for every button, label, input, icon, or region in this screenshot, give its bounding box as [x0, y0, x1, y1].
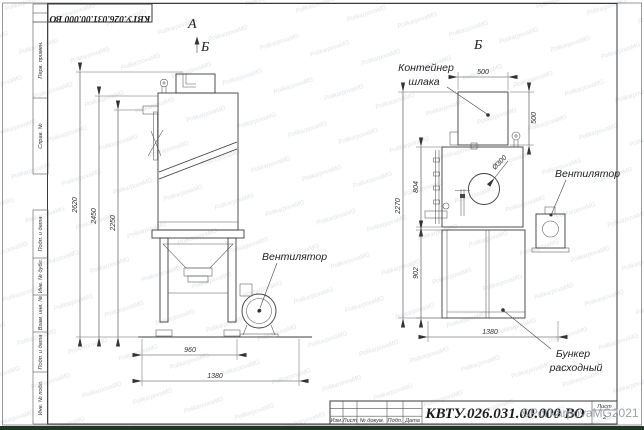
- dim-500-h: 500: [531, 112, 538, 124]
- hopper-label-line1: Бункер: [556, 348, 590, 360]
- front-fan-label: Вентилятор: [262, 251, 327, 263]
- section-view-label: Б: [473, 38, 482, 53]
- dim-1380-section: 1380: [482, 329, 498, 336]
- drawing-sheet: PolikarpovaMG PolikarpovaMG КВТУ.026.031…: [0, 0, 644, 430]
- dim-500-w: 500: [477, 69, 489, 76]
- view-arrow-label-b: Б: [200, 40, 209, 55]
- dim-2620: 2620: [72, 197, 79, 214]
- strip-podp-data-1: Подп. и дата: [38, 216, 44, 251]
- strip-inv-podl: Инв. № подл.: [38, 381, 44, 416]
- section-fan-label: Вентилятор: [555, 168, 620, 180]
- strip-podp-data-2: Подп. и дата: [38, 334, 44, 369]
- view-arrow-label-a: А: [187, 17, 197, 32]
- strip-perv-primen: Перв. примен.: [38, 41, 44, 78]
- dim-902: 902: [413, 267, 420, 279]
- stamp-doc-number: КВТУ.026.031.00.000 ВО: [49, 13, 151, 23]
- tb-col-list: Лист: [342, 418, 358, 424]
- tb-col-data: Дата: [404, 418, 420, 424]
- corner-watermark: ©PolikarpovaMG2021: [521, 406, 639, 420]
- dim-960: 960: [184, 347, 196, 354]
- container-label-line2: шлака: [408, 76, 439, 88]
- valve-handle: [460, 194, 465, 198]
- strip-inv-dubl: Инв. № дубл.: [38, 259, 44, 293]
- dim-1380-front: 1380: [207, 373, 223, 380]
- dim-2450: 2450: [91, 208, 98, 225]
- dim-2250: 2250: [110, 215, 117, 232]
- strip-vzam-inv: Взам. инв. №: [38, 296, 44, 331]
- dim-2270: 2270: [395, 198, 402, 215]
- tb-col-ndokum: № докум.: [360, 418, 385, 424]
- container-label-line1: Контейнер: [398, 62, 454, 74]
- dim-804: 804: [413, 181, 420, 193]
- engineering-drawing: PolikarpovaMG PolikarpovaMG КВТУ.026.031…: [0, 0, 644, 430]
- tb-col-izm: Изм.: [331, 418, 343, 424]
- strip-sprav-n: Справ. №: [38, 123, 44, 148]
- bottom-edge-bar: [0, 426, 644, 430]
- tb-col-podp: Подп.: [388, 418, 403, 424]
- hopper-label-line2: расходный: [549, 362, 603, 374]
